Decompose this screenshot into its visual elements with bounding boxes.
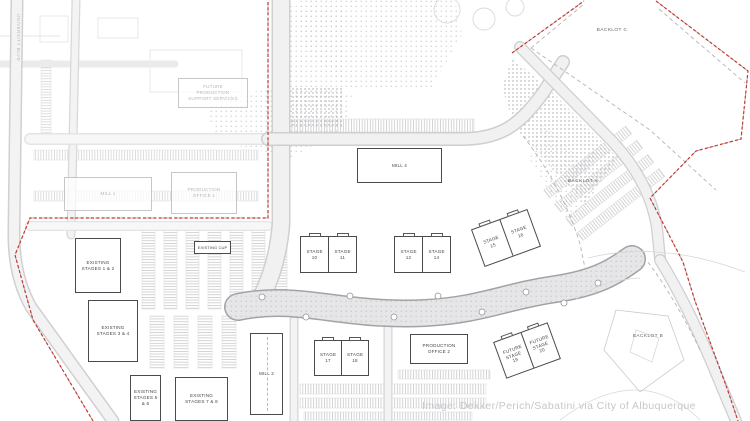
building-production-office-1: PRODUCTION OFFICE 1 bbox=[171, 172, 237, 214]
stage-14: STAGE 14 bbox=[423, 237, 450, 272]
building-label: EXISTING STAGES 7 & 8 bbox=[185, 393, 219, 405]
building-label: EXISTING CUP bbox=[198, 245, 227, 250]
stage-label: STAGE 15 bbox=[483, 235, 502, 252]
building-existing-stages-3-4: EXISTING STAGES 3 & 4 bbox=[88, 300, 138, 362]
building-label: EXISTING STAGES 3 & 4 bbox=[96, 325, 130, 337]
stage-label: STAGE 10 bbox=[307, 249, 323, 261]
building-mill-4: MILL 4 bbox=[357, 148, 442, 183]
building-production-office-2: PRODUCTION OFFICE 2 bbox=[410, 334, 468, 364]
backlot-a-label: BACKLOT A bbox=[566, 178, 600, 185]
stage-12: STAGE 12 bbox=[395, 237, 423, 272]
building-label: FUTURE PRODUCTION SUPPORT SERVICES bbox=[187, 84, 239, 102]
stage-11: STAGE 11 bbox=[329, 237, 356, 272]
credit-watermark: Image: Dekker/Perich/Sabatini via City o… bbox=[422, 400, 696, 412]
building-label: PRODUCTION OFFICE 1 bbox=[186, 187, 222, 199]
street-label-west: UNIVERSITY BLVD bbox=[16, 14, 21, 61]
stage-label: STAGE 11 bbox=[335, 249, 351, 261]
building-label: EXISTING STAGES 5 & 6 bbox=[133, 389, 159, 407]
building-mill-2: MILL 2 bbox=[250, 333, 283, 415]
stage-label: STAGE 14 bbox=[429, 249, 445, 261]
stage-18: STAGE 18 bbox=[342, 341, 368, 375]
stage-label: STAGE 12 bbox=[401, 249, 417, 261]
building-stage-17-18: STAGE 17 STAGE 18 bbox=[314, 340, 369, 376]
stage-label: STAGE 18 bbox=[347, 352, 363, 364]
building-label: MILL 2 bbox=[258, 371, 275, 377]
building-stage-12-14: STAGE 12 STAGE 14 bbox=[394, 236, 451, 273]
backlot-c-label: BACKLOT C bbox=[595, 27, 629, 34]
building-label: PRODUCTION OFFICE 2 bbox=[422, 343, 456, 355]
building-mill-1: MILL 1 bbox=[64, 177, 152, 211]
building-existing-stages-5-6: EXISTING STAGES 5 & 6 bbox=[130, 375, 161, 421]
building-existing-cup: EXISTING CUP bbox=[194, 241, 231, 254]
building-label: MILL 4 bbox=[392, 163, 407, 169]
building-label: MILL 1 bbox=[100, 191, 115, 197]
building-label: EXISTING STAGES 1 & 2 bbox=[81, 260, 115, 272]
stage-17: STAGE 17 bbox=[315, 341, 342, 375]
building-existing-stages-7-8: EXISTING STAGES 7 & 8 bbox=[175, 377, 228, 421]
building-existing-stages-1-2: EXISTING STAGES 1 & 2 bbox=[75, 238, 121, 293]
backlot-b-label: BACKLOT B bbox=[631, 333, 665, 340]
stage-10: STAGE 10 bbox=[301, 237, 329, 272]
stage-label: STAGE 16 bbox=[510, 225, 529, 242]
building-future-production-support-services: FUTURE PRODUCTION SUPPORT SERVICES bbox=[178, 78, 248, 108]
stage-label: STAGE 17 bbox=[320, 352, 336, 364]
stage-label: FUTURE STAGE 19 bbox=[502, 344, 525, 367]
building-stage-10-11: STAGE 10 STAGE 11 bbox=[300, 236, 357, 273]
stage-label: FUTURE STAGE 20 bbox=[529, 334, 552, 357]
site-plan: FUTURE PRODUCTION SUPPORT SERVICES MILL … bbox=[0, 0, 750, 421]
